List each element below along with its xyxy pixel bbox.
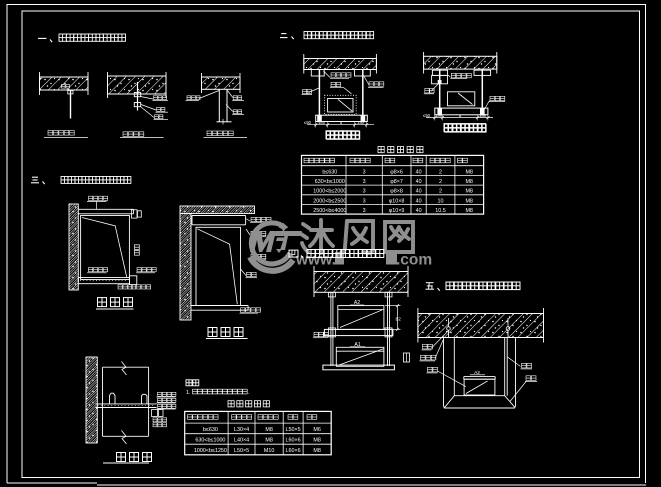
- svg-text:1.: 1.: [186, 390, 191, 396]
- svg-text:φ10×8: φ10×8: [389, 198, 405, 204]
- svg-text:φ8×7: φ8×7: [390, 179, 403, 185]
- svg-text:M8: M8: [465, 179, 473, 185]
- svg-text:10: 10: [438, 198, 444, 204]
- svg-text:40: 40: [416, 169, 422, 175]
- svg-text:150: 150: [435, 113, 443, 118]
- svg-text:1000<b≤1250: 1000<b≤1250: [194, 448, 227, 454]
- svg-text:2: 2: [439, 179, 442, 185]
- svg-text:1000<b≤2000: 1000<b≤2000: [313, 189, 346, 195]
- svg-text:≤50: ≤50: [304, 120, 312, 125]
- svg-text:2: 2: [439, 169, 442, 175]
- svg-text:L60×6: L60×6: [286, 438, 301, 444]
- svg-text:≤50: ≤50: [423, 113, 431, 118]
- svg-text:L50×5: L50×5: [234, 448, 249, 454]
- svg-text:M8: M8: [265, 438, 273, 444]
- svg-text:M8: M8: [465, 189, 473, 195]
- svg-text:150: 150: [479, 113, 487, 118]
- svg-text:10.5: 10.5: [435, 208, 446, 214]
- svg-text:M10: M10: [264, 448, 275, 454]
- svg-text:40: 40: [416, 208, 422, 214]
- svg-text:M8: M8: [313, 438, 321, 444]
- svg-text:3: 3: [363, 208, 366, 214]
- svg-text:630<b≤1000: 630<b≤1000: [195, 438, 225, 444]
- svg-text:M6: M6: [313, 427, 321, 433]
- svg-text:150: 150: [357, 120, 365, 125]
- svg-text:M8: M8: [465, 169, 473, 175]
- svg-text:M8: M8: [313, 448, 321, 454]
- svg-text:3: 3: [363, 198, 366, 204]
- svg-text:M8: M8: [265, 427, 273, 433]
- svg-text:b≤630: b≤630: [203, 427, 218, 433]
- svg-text:.com: .com: [396, 252, 432, 269]
- svg-text:L30×4: L30×4: [234, 427, 249, 433]
- svg-text:2000<b≤2500: 2000<b≤2500: [313, 198, 346, 204]
- svg-text:3: 3: [363, 179, 366, 185]
- svg-text:b≤630: b≤630: [322, 169, 337, 175]
- svg-text:40: 40: [416, 179, 422, 185]
- svg-text:φ8×6: φ8×6: [390, 169, 403, 175]
- svg-text:630<b≤1000: 630<b≤1000: [315, 179, 345, 185]
- svg-text:L60×6: L60×6: [286, 448, 301, 454]
- svg-text:150: 150: [318, 120, 326, 125]
- svg-text:L50×5: L50×5: [286, 427, 301, 433]
- svg-text:B2: B2: [396, 317, 402, 322]
- svg-text:φ10×9: φ10×9: [389, 208, 405, 214]
- svg-text:2: 2: [439, 189, 442, 195]
- svg-text:3: 3: [363, 189, 366, 195]
- svg-text:M8: M8: [465, 208, 473, 214]
- svg-text:2500<b≤4000: 2500<b≤4000: [313, 208, 346, 214]
- svg-text:M8: M8: [465, 198, 473, 204]
- svg-text:L40×4: L40×4: [234, 438, 249, 444]
- svg-text:40: 40: [416, 189, 422, 195]
- svg-text:3: 3: [363, 169, 366, 175]
- svg-text:φ8×8: φ8×8: [390, 189, 403, 195]
- svg-text:40: 40: [416, 198, 422, 204]
